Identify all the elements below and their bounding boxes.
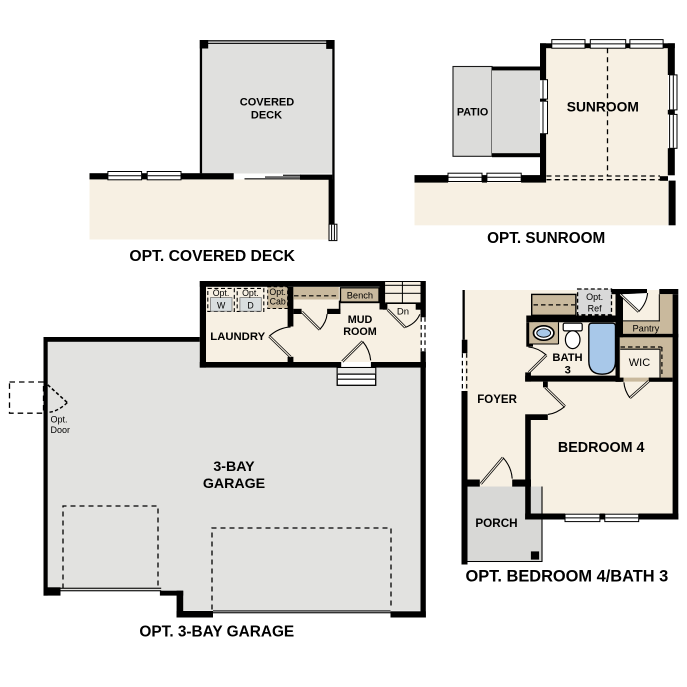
svg-text:3: 3	[565, 364, 571, 376]
svg-text:Opt.: Opt.	[213, 288, 230, 298]
svg-text:Opt.: Opt.	[242, 288, 259, 298]
svg-text:COVERED: COVERED	[240, 96, 294, 108]
svg-text:BEDROOM 4: BEDROOM 4	[558, 440, 645, 456]
svg-text:FOYER: FOYER	[477, 394, 517, 406]
svg-text:Dn: Dn	[397, 306, 409, 317]
svg-text:WIC: WIC	[629, 357, 650, 369]
svg-text:Ref: Ref	[588, 303, 603, 313]
svg-text:OPT. COVERED DECK: OPT. COVERED DECK	[129, 248, 295, 265]
svg-text:Opt.: Opt.	[269, 287, 286, 297]
svg-text:OPT. 3-BAY GARAGE: OPT. 3-BAY GARAGE	[139, 623, 294, 640]
svg-text:GARAGE: GARAGE	[203, 476, 265, 492]
svg-text:Bench: Bench	[347, 290, 373, 300]
svg-text:Pantry: Pantry	[632, 324, 659, 334]
svg-text:W: W	[217, 301, 226, 311]
svg-text:MUD: MUD	[348, 314, 373, 326]
svg-text:PORCH: PORCH	[475, 517, 517, 530]
svg-text:3-BAY: 3-BAY	[213, 459, 255, 475]
svg-text:Opt.: Opt.	[51, 414, 68, 424]
svg-text:Cab: Cab	[270, 297, 286, 307]
svg-text:OPT. BEDROOM 4/BATH 3: OPT. BEDROOM 4/BATH 3	[466, 568, 669, 586]
svg-text:Door: Door	[51, 425, 71, 435]
svg-text:Opt.: Opt.	[586, 292, 603, 302]
svg-text:LAUNDRY: LAUNDRY	[210, 331, 265, 343]
svg-text:PATIO: PATIO	[457, 106, 488, 118]
svg-text:ROOM: ROOM	[343, 326, 377, 338]
svg-text:SUNROOM: SUNROOM	[567, 99, 639, 114]
svg-text:D: D	[247, 301, 253, 311]
svg-text:DECK: DECK	[251, 110, 282, 122]
svg-text:OPT. SUNROOM: OPT. SUNROOM	[487, 230, 605, 247]
svg-text:BATH: BATH	[552, 352, 582, 364]
